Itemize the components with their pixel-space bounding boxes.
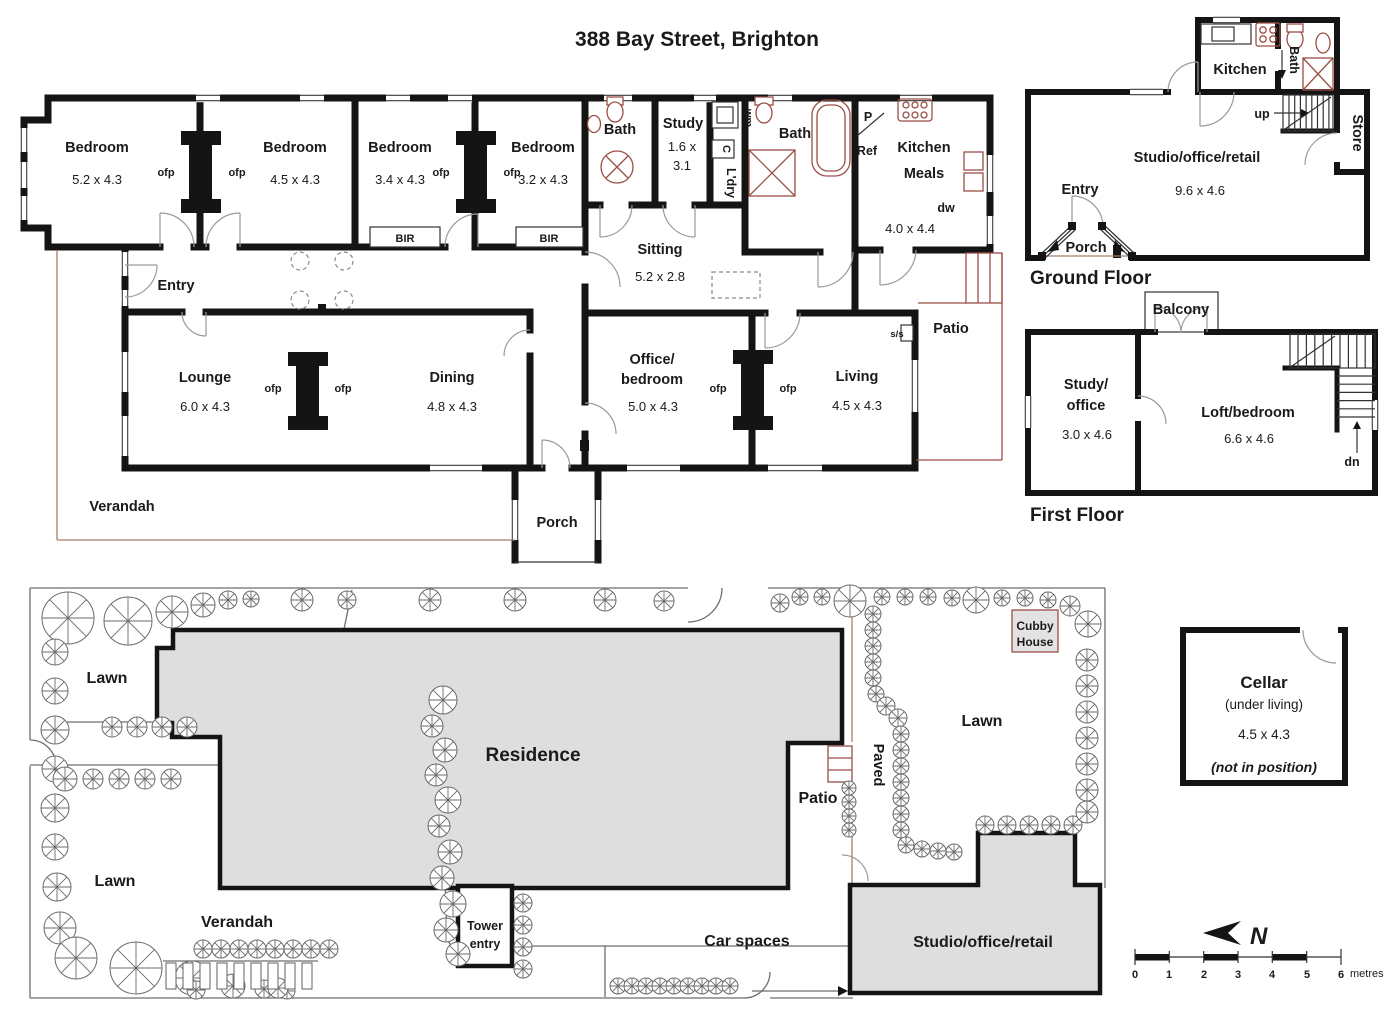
verandah-label: Verandah xyxy=(89,499,154,515)
car-spaces-label: Car spaces xyxy=(704,933,789,950)
scale-unit: metres xyxy=(1350,968,1384,980)
gf-kitchen-label: Kitchen xyxy=(1213,62,1266,78)
pantry-label: P xyxy=(864,110,872,124)
bir-label: BIR xyxy=(540,233,559,245)
main-floor-windows xyxy=(20,94,994,540)
scale-tick-1: 1 xyxy=(1166,969,1172,981)
scale-bar: 0 1 2 3 4 5 6 metres xyxy=(1132,949,1384,981)
store-label: Store xyxy=(1349,114,1365,151)
bedroom3-dims: 3.4 x 4.3 xyxy=(375,172,425,187)
study-dims1: 1.6 x xyxy=(668,139,697,154)
north-arrow: N xyxy=(1203,921,1268,950)
main-floor-plan: Bedroom 5.2 x 4.3 Bedroom 4.5 x 4.3 Bedr… xyxy=(20,94,1002,562)
site-studio-label: Studio/office/retail xyxy=(913,934,1053,951)
porch-label: Porch xyxy=(536,515,577,531)
wm-label: wm xyxy=(742,108,754,128)
ss-label: s/s xyxy=(890,329,903,340)
scale-tick-3: 3 xyxy=(1235,969,1241,981)
cellar-sub: (under living) xyxy=(1225,697,1303,712)
bedroom4-dims: 3.2 x 4.3 xyxy=(518,172,568,187)
residence-label: Residence xyxy=(485,745,580,766)
laundry-label: L'dry xyxy=(724,168,738,198)
paved-label: Paved xyxy=(870,744,886,787)
ff-study-label2: office xyxy=(1067,398,1106,414)
bedroom1-dims: 5.2 x 4.3 xyxy=(72,172,122,187)
ofp-label: ofp xyxy=(503,167,520,179)
first-floor-caption: First Floor xyxy=(1030,505,1125,526)
patio-label: Patio xyxy=(933,321,969,337)
meals-label: Meals xyxy=(904,166,944,182)
living-label: Living xyxy=(836,369,879,385)
cellar-note: (not in position) xyxy=(1211,759,1317,775)
ofp-label: ofp xyxy=(709,383,726,395)
loft-label: Loft/bedroom xyxy=(1201,405,1294,421)
sitting-label: Sitting xyxy=(637,242,682,258)
loft-dims: 6.6 x 4.6 xyxy=(1224,431,1274,446)
bath2-fixtures xyxy=(749,97,850,196)
ofp-label: ofp xyxy=(432,167,449,179)
study-dims2: 3.1 xyxy=(673,158,691,173)
lawn-label: Lawn xyxy=(95,873,136,890)
bedroom4-label: Bedroom xyxy=(511,140,575,156)
ofp-label: ofp xyxy=(264,383,281,395)
sitting-dims: 5.2 x 2.8 xyxy=(635,269,685,284)
bath2-label: Bath xyxy=(779,126,811,142)
ofp-label: ofp xyxy=(334,383,351,395)
ground-floor-doors xyxy=(1072,62,1337,227)
dining-dims: 4.8 x 4.3 xyxy=(427,399,477,414)
gf-studio-label: Studio/office/retail xyxy=(1134,150,1261,166)
cellar-dims: 4.5 x 4.3 xyxy=(1238,727,1290,742)
ref-label: Ref xyxy=(857,144,878,158)
gf-porch-label: Porch xyxy=(1065,240,1106,256)
ground-stairs xyxy=(1274,95,1333,131)
ground-kitchen-fixtures xyxy=(1201,23,1280,46)
kitchen-dims: 4.0 x 4.4 xyxy=(885,221,935,236)
gf-studio-dims: 9.6 x 4.6 xyxy=(1175,183,1225,198)
dn-label: dn xyxy=(1344,455,1359,469)
bedroom3-label: Bedroom xyxy=(368,140,432,156)
office-dims: 5.0 x 4.3 xyxy=(628,399,678,414)
living-dims: 4.5 x 4.3 xyxy=(832,398,882,413)
ofp-label: ofp xyxy=(157,167,174,179)
bath1-fixtures xyxy=(588,97,634,183)
office-label1: Office/ xyxy=(629,352,674,368)
site-verandah-label: Verandah xyxy=(201,914,273,931)
ground-floor-walls xyxy=(1028,20,1367,258)
first-floor-stairs xyxy=(1290,334,1375,453)
kitchen-label: Kitchen xyxy=(897,140,950,156)
study-label: Study xyxy=(663,116,703,132)
tower-label1: Tower xyxy=(467,919,503,933)
cupboard-label: C xyxy=(720,145,732,153)
cellar-plan: Cellar (under living) 4.5 x 4.3 (not in … xyxy=(1183,623,1345,783)
ground-floor-plan: Kitchen Bath up Store Studio/office/reta… xyxy=(1028,16,1367,289)
gf-entry-label: Entry xyxy=(1061,182,1098,198)
ofp-label: ofp xyxy=(779,383,796,395)
first-floor-plan: Balcony Study/ office 3.0 x 4.6 Loft/bed… xyxy=(1024,292,1379,526)
site-patio-label: Patio xyxy=(798,790,837,807)
balcony-label: Balcony xyxy=(1153,302,1209,318)
scale-tick-5: 5 xyxy=(1304,969,1310,981)
dining-label: Dining xyxy=(429,370,474,386)
office-label2: bedroom xyxy=(621,372,683,388)
cubby-label2: House xyxy=(1017,635,1054,649)
north-label: N xyxy=(1250,923,1268,950)
bedroom1-label: Bedroom xyxy=(65,140,129,156)
lawn-label: Lawn xyxy=(87,670,128,687)
site-studio-building xyxy=(850,833,1100,993)
up-label: up xyxy=(1254,107,1270,121)
bedroom2-label: Bedroom xyxy=(263,140,327,156)
cellar-label: Cellar xyxy=(1240,673,1288,692)
site-plan: Lawn Lawn Lawn Residence Verandah Tower … xyxy=(30,585,1105,999)
ofp-label: ofp xyxy=(228,167,245,179)
bir-label: BIR xyxy=(396,233,415,245)
floor-plan-page: 388 Bay Street, Brighton xyxy=(0,0,1400,1014)
scale-tick-6: 6 xyxy=(1338,969,1344,981)
hall-columns xyxy=(291,252,760,309)
gf-bath-label: Bath xyxy=(1287,46,1301,74)
scale-tick-2: 2 xyxy=(1201,969,1207,981)
page-title: 388 Bay Street, Brighton xyxy=(575,28,819,51)
lounge-dims: 6.0 x 4.3 xyxy=(180,399,230,414)
cubby-label1: Cubby xyxy=(1016,619,1054,633)
ff-study-label1: Study/ xyxy=(1064,377,1108,393)
bedroom2-dims: 4.5 x 4.3 xyxy=(270,172,320,187)
scale-tick-4: 4 xyxy=(1269,969,1276,981)
ground-floor-caption: Ground Floor xyxy=(1030,268,1152,289)
bath1-label: Bath xyxy=(604,122,636,138)
verandah-posts xyxy=(166,963,312,989)
ground-bath-fixtures xyxy=(1278,24,1333,90)
dw-label: dw xyxy=(937,201,955,215)
lawn-label: Lawn xyxy=(962,713,1003,730)
scale-tick-0: 0 xyxy=(1132,969,1138,981)
tower-label2: entry xyxy=(470,937,501,951)
ff-study-dims: 3.0 x 4.6 xyxy=(1062,427,1112,442)
entry-label: Entry xyxy=(157,278,194,294)
lounge-label: Lounge xyxy=(179,370,231,386)
floor-plan-drawing: 388 Bay Street, Brighton xyxy=(0,0,1400,1014)
